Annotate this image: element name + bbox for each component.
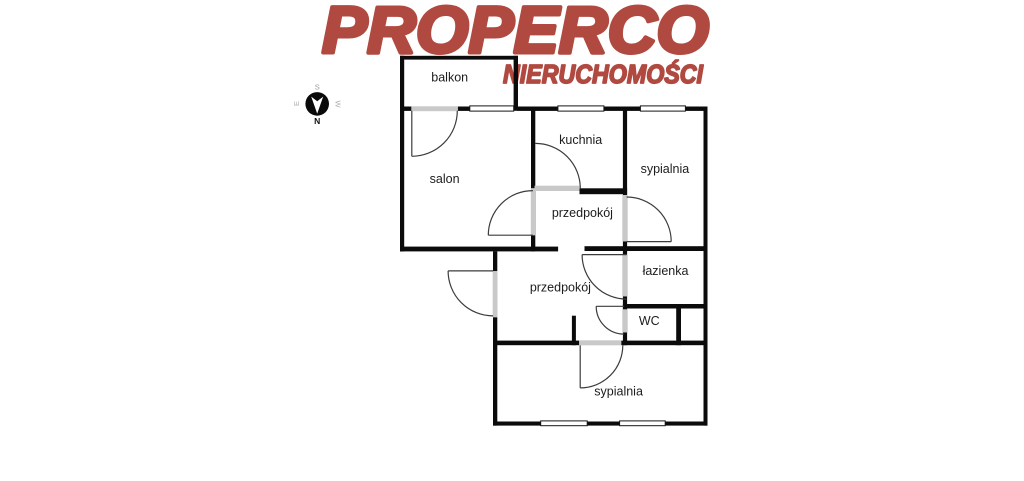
svg-text:sypialnia: sypialnia	[641, 162, 690, 176]
svg-text:WC: WC	[639, 314, 660, 328]
svg-text:sypialnia: sypialnia	[594, 385, 643, 399]
svg-text:przedpokój: przedpokój	[552, 206, 613, 220]
svg-text:W: W	[334, 100, 343, 108]
svg-text:przedpokój: przedpokój	[530, 280, 591, 294]
svg-text:E: E	[292, 101, 301, 106]
svg-text:S: S	[315, 83, 320, 92]
svg-text:NIERUCHOMOŚCI: NIERUCHOMOŚCI	[503, 59, 704, 89]
svg-text:balkon: balkon	[431, 71, 468, 85]
svg-text:kuchnia: kuchnia	[559, 133, 602, 147]
svg-text:salon: salon	[430, 172, 460, 186]
svg-text:łazienka: łazienka	[643, 264, 689, 278]
svg-text:N: N	[314, 116, 320, 126]
